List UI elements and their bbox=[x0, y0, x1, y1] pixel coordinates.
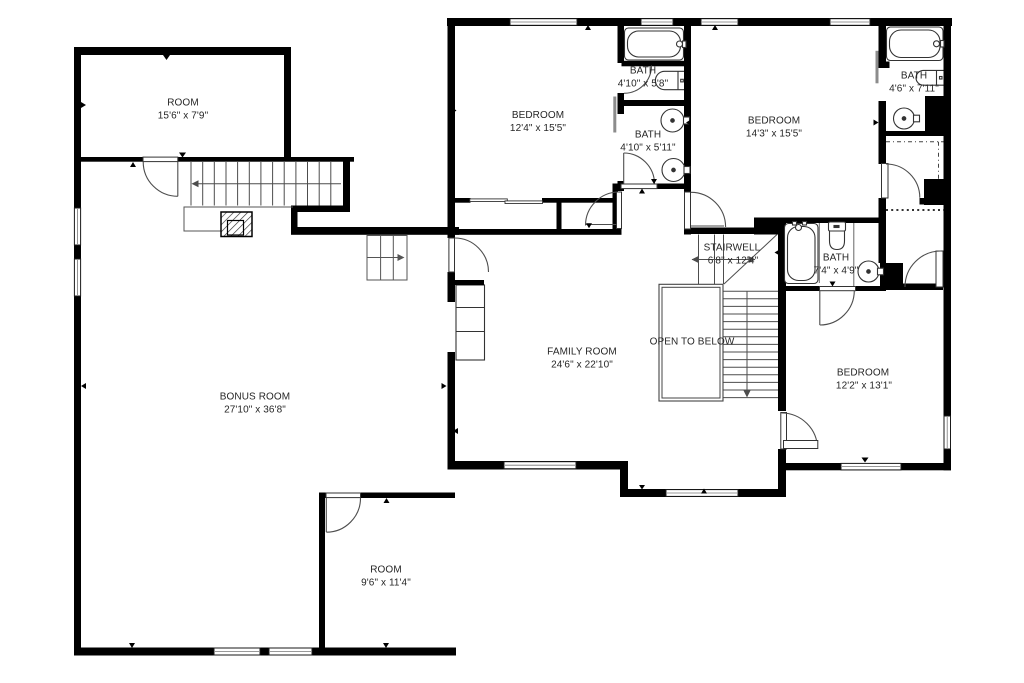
svg-text:BATH: BATH bbox=[630, 66, 656, 77]
svg-text:4'10" x 5'11": 4'10" x 5'11" bbox=[620, 143, 676, 154]
svg-text:4'10" x 5'8": 4'10" x 5'8" bbox=[618, 79, 669, 90]
svg-text:4'6" x 7'11": 4'6" x 7'11" bbox=[889, 84, 939, 95]
svg-text:9'6" x 11'4": 9'6" x 11'4" bbox=[361, 578, 411, 589]
svg-text:STAIRWELL: STAIRWELL bbox=[704, 243, 761, 254]
svg-text:27'10" x 36'8": 27'10" x 36'8" bbox=[224, 405, 286, 416]
svg-text:24'6" x 22'10": 24'6" x 22'10" bbox=[551, 360, 613, 371]
svg-text:ROOM: ROOM bbox=[167, 98, 199, 109]
svg-text:12'2" x 13'1": 12'2" x 13'1" bbox=[836, 381, 892, 392]
svg-text:BATH: BATH bbox=[823, 253, 849, 264]
svg-text:BEDROOM: BEDROOM bbox=[837, 368, 889, 379]
svg-text:FAMILY ROOM: FAMILY ROOM bbox=[547, 347, 617, 358]
svg-text:ROOM: ROOM bbox=[370, 565, 402, 576]
svg-text:BATH: BATH bbox=[635, 130, 661, 141]
svg-text:14'3" x 15'5": 14'3" x 15'5" bbox=[746, 129, 802, 140]
svg-text:BATH: BATH bbox=[901, 71, 927, 82]
svg-text:OPEN TO BELOW: OPEN TO BELOW bbox=[650, 337, 735, 348]
svg-text:BONUS ROOM: BONUS ROOM bbox=[220, 392, 290, 403]
svg-text:12'4" x 15'5": 12'4" x 15'5" bbox=[510, 123, 566, 134]
svg-text:6'8" x 12'4": 6'8" x 12'4" bbox=[708, 256, 759, 267]
svg-text:BEDROOM: BEDROOM bbox=[748, 116, 800, 127]
svg-text:15'6" x 7'9": 15'6" x 7'9" bbox=[158, 111, 209, 122]
svg-text:7'4" x 4'9": 7'4" x 4'9" bbox=[814, 266, 859, 277]
svg-text:BEDROOM: BEDROOM bbox=[512, 110, 564, 121]
